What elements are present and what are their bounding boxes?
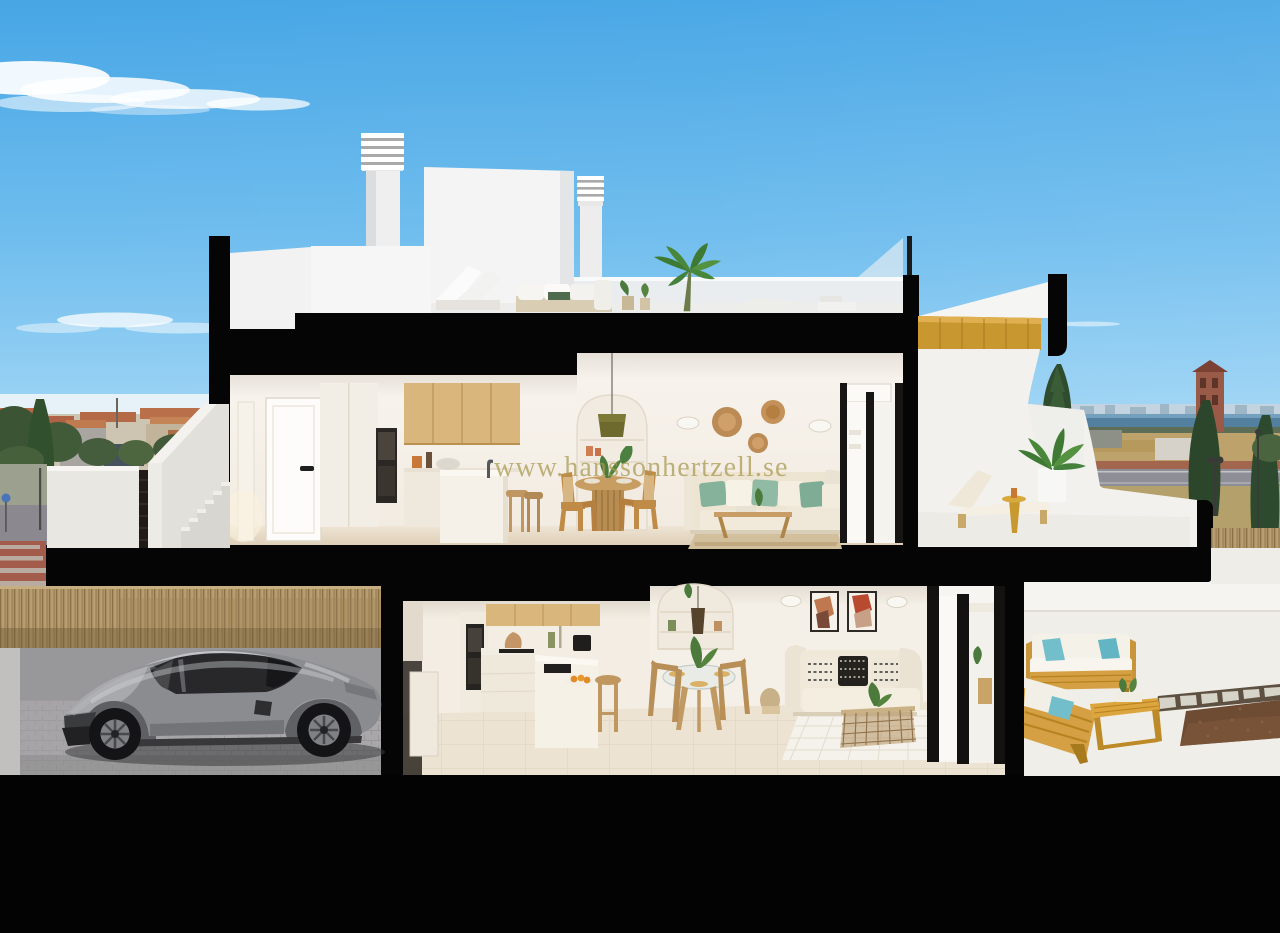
svg-text:www.hanssonhertzell.se: www.hanssonhertzell.se (494, 452, 789, 483)
